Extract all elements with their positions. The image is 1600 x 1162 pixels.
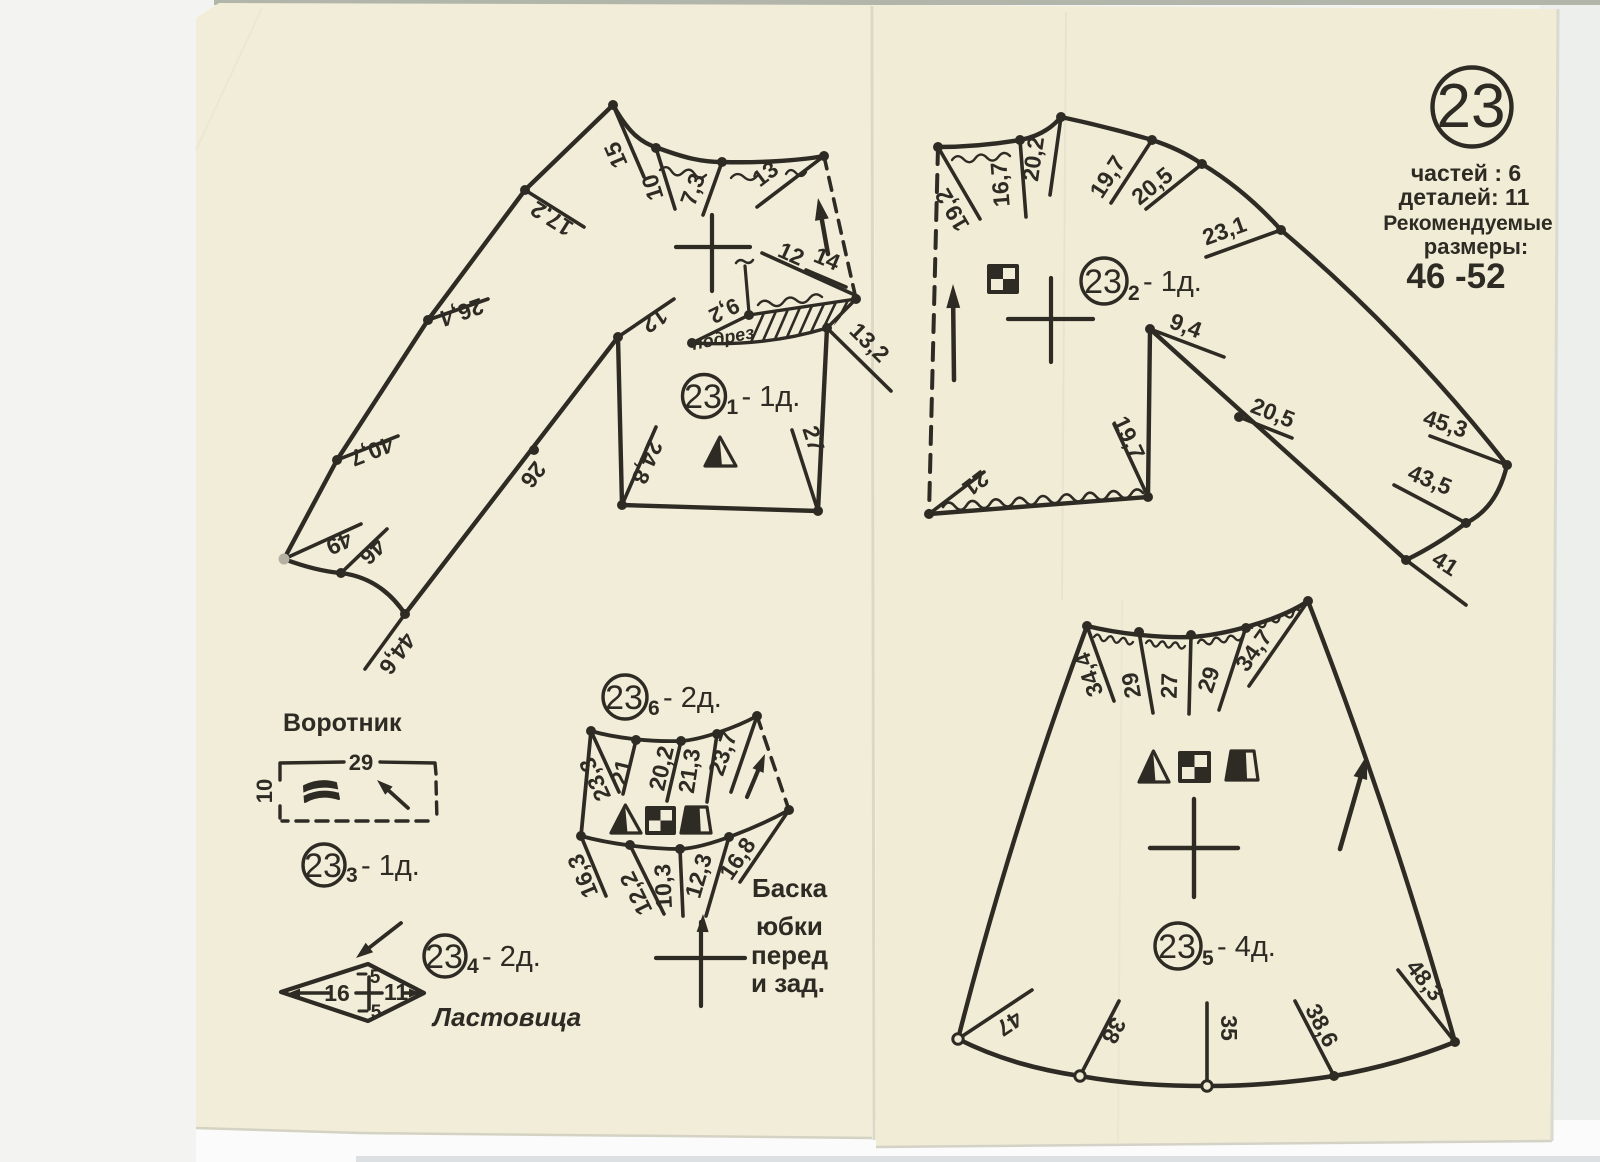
svg-text:16: 16 <box>324 980 350 1006</box>
svg-text:- 1д.: - 1д. <box>1143 266 1202 298</box>
svg-text:23: 23 <box>1084 263 1122 301</box>
svg-text:23: 23 <box>1437 72 1506 141</box>
svg-text:5: 5 <box>1202 947 1214 970</box>
svg-text:11: 11 <box>384 979 409 1005</box>
svg-text:юбки: юбки <box>756 911 823 941</box>
svg-text:35: 35 <box>1216 1015 1242 1041</box>
svg-text:29: 29 <box>1116 671 1146 701</box>
svg-text:5: 5 <box>370 967 381 988</box>
svg-text:23: 23 <box>1158 928 1196 966</box>
svg-text:10,3: 10,3 <box>649 863 677 909</box>
svg-text:3: 3 <box>346 864 358 887</box>
svg-text:4: 4 <box>467 955 479 978</box>
svg-text:5: 5 <box>371 1002 382 1023</box>
svg-text:Рекомендуемые: Рекомендуемые <box>1383 212 1552 235</box>
svg-text:23: 23 <box>425 938 463 976</box>
svg-text:2: 2 <box>1128 282 1140 305</box>
svg-text:- 1д.: - 1д. <box>361 850 420 882</box>
svg-text:23: 23 <box>304 847 342 885</box>
svg-text:- 2д.: - 2д. <box>482 941 541 973</box>
svg-text:23: 23 <box>605 679 643 717</box>
svg-text:6: 6 <box>648 697 660 720</box>
svg-text:частей : 6: частей : 6 <box>1411 160 1521 186</box>
svg-text:- 1д.: - 1д. <box>742 381 801 413</box>
svg-text:- 4д.: - 4д. <box>1217 931 1276 963</box>
svg-text:29: 29 <box>349 750 373 775</box>
svg-text:23: 23 <box>684 378 722 416</box>
svg-text:размеры:: размеры: <box>1424 234 1528 259</box>
svg-text:деталей: 11: деталей: 11 <box>1399 184 1530 210</box>
svg-text:Баска: Баска <box>752 873 828 903</box>
svg-text:10: 10 <box>252 779 277 803</box>
svg-text:перед: перед <box>751 940 829 970</box>
svg-text:Воротник: Воротник <box>283 709 402 737</box>
svg-text:1: 1 <box>727 396 739 419</box>
svg-text:Ластовица: Ластовица <box>431 1002 581 1032</box>
svg-text:16,7: 16,7 <box>985 161 1014 208</box>
svg-text:и зад.: и зад. <box>751 968 825 998</box>
svg-text:- 2д.: - 2д. <box>663 682 722 714</box>
svg-text:27: 27 <box>1156 673 1183 699</box>
svg-text:46 -52: 46 -52 <box>1406 257 1505 296</box>
